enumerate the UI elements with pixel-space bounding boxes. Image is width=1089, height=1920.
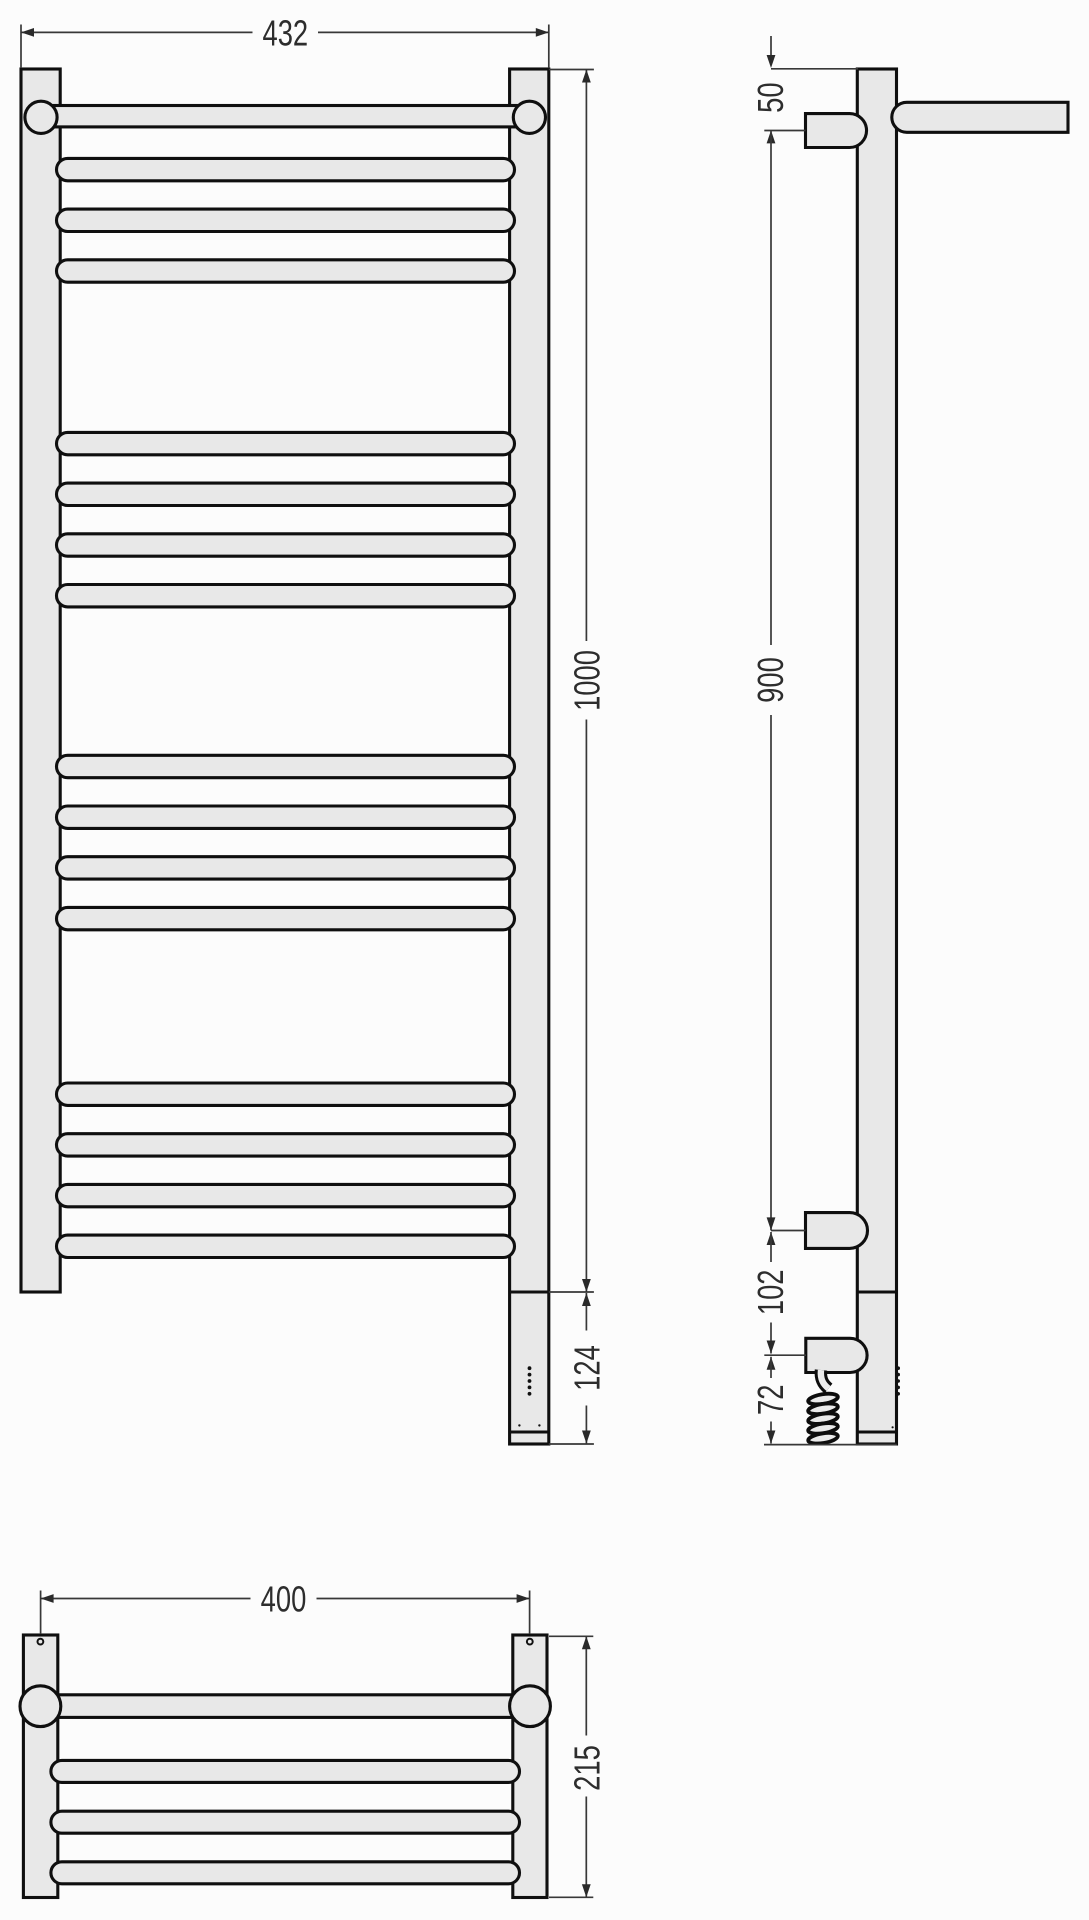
svg-text:102: 102 <box>751 1269 792 1315</box>
svg-text:215: 215 <box>567 1745 608 1791</box>
svg-text:72: 72 <box>751 1385 792 1415</box>
svg-text:124: 124 <box>567 1345 608 1391</box>
svg-text:1000: 1000 <box>567 650 608 711</box>
svg-text:400: 400 <box>261 1579 307 1620</box>
svg-text:432: 432 <box>262 13 308 54</box>
svg-text:900: 900 <box>751 657 792 703</box>
svg-text:50: 50 <box>751 82 792 112</box>
